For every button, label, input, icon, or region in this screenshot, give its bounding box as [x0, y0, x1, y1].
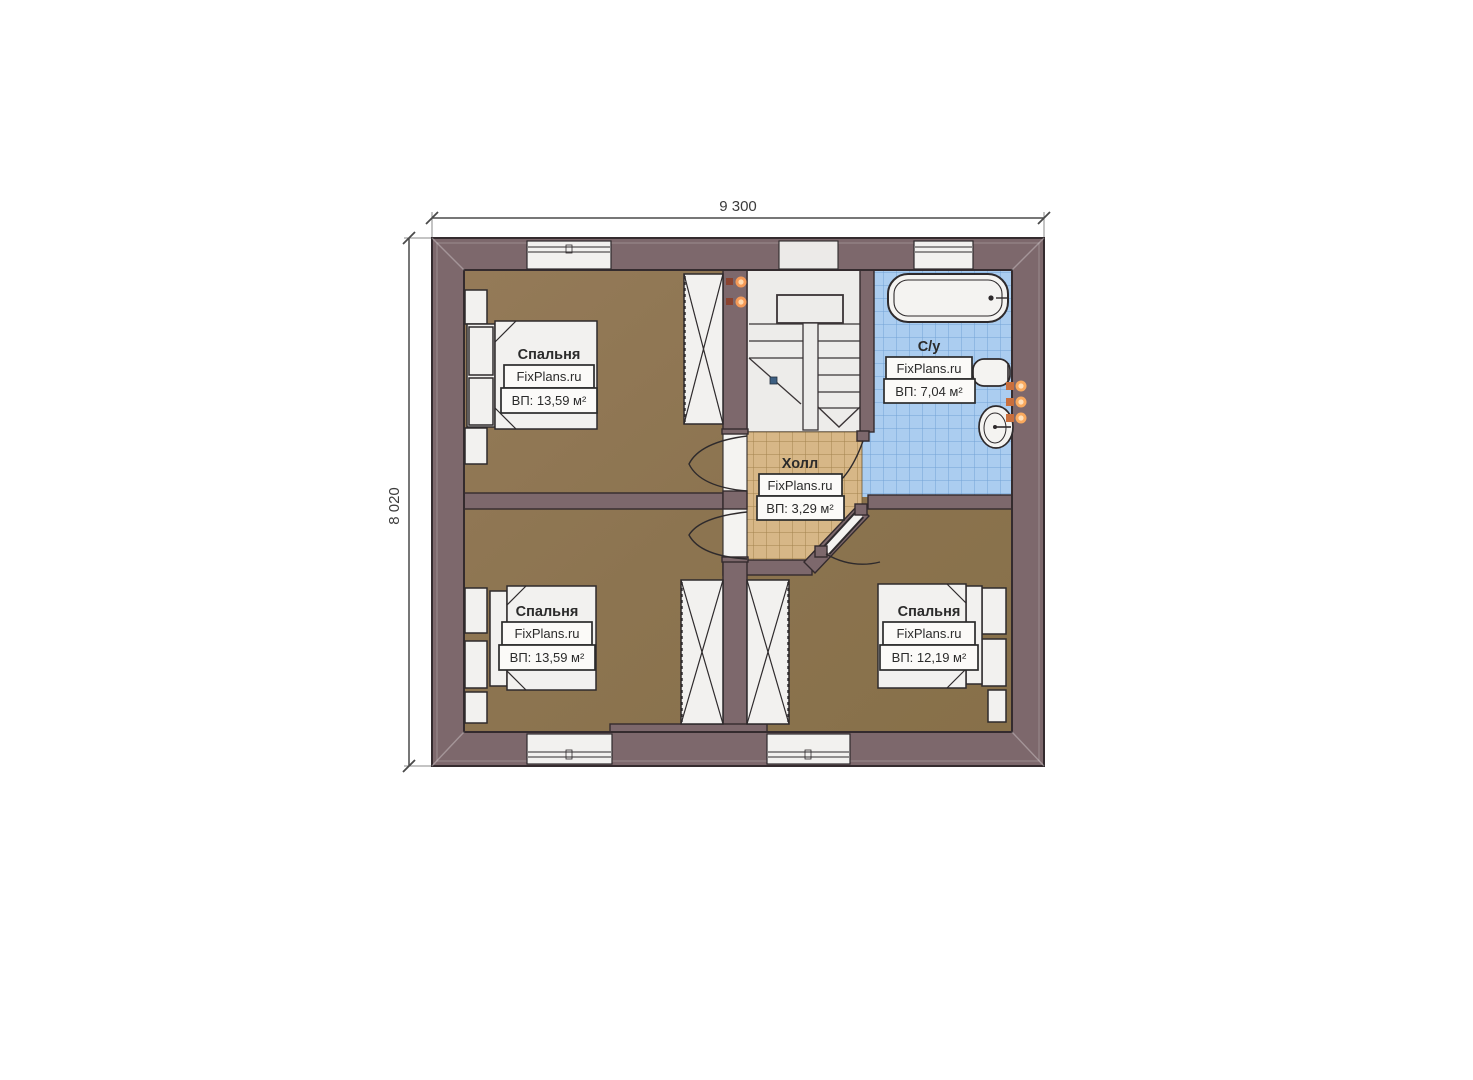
room-area: ВП: 3,29 м²	[766, 501, 834, 516]
window-icon	[527, 734, 612, 764]
window-icon	[779, 241, 838, 269]
window-icon	[914, 241, 973, 269]
wall-stairs-bathroom	[860, 270, 874, 432]
room-watermark: FixPlans.ru	[896, 361, 961, 376]
sink-icon	[979, 406, 1013, 448]
wardrobe-icon	[681, 580, 723, 724]
dimension-top-label: 9 300	[719, 198, 757, 215]
floor-plan-page: 9 300 8 020	[0, 0, 1473, 1080]
window-icon	[527, 241, 611, 269]
wall-bedrooms-divider	[464, 493, 723, 509]
wall-bedroom-stairs	[723, 270, 747, 432]
window-icon	[767, 734, 850, 764]
wardrobe-icon	[684, 274, 723, 424]
room-area: ВП: 12,19 м²	[892, 650, 967, 665]
bathtub-icon	[888, 274, 1008, 322]
room-name: Холл	[782, 456, 818, 472]
dimension-left: 8 020	[386, 232, 432, 772]
floor-plan-canvas: 9 300 8 020	[0, 0, 1473, 1080]
dimension-left-label: 8 020	[386, 487, 403, 525]
stairs-break-marker	[770, 377, 777, 384]
wall-bathroom-bedroom	[868, 495, 1012, 509]
room-watermark: FixPlans.ru	[767, 478, 832, 493]
room-watermark: FixPlans.ru	[514, 626, 579, 641]
room-name: С/у	[918, 339, 941, 355]
room-name: Спальня	[516, 604, 579, 620]
room-area: ВП: 13,59 м²	[510, 650, 585, 665]
room-area: ВП: 7,04 м²	[895, 384, 963, 399]
wardrobe-icon	[747, 580, 789, 724]
room-watermark: FixPlans.ru	[516, 369, 581, 384]
room-name: Спальня	[898, 604, 961, 620]
room-area: ВП: 13,59 м²	[512, 393, 587, 408]
dimension-top: 9 300	[426, 198, 1050, 238]
toilet-icon	[973, 359, 1010, 386]
wall-bedrooms-stub	[723, 560, 747, 728]
room-name: Спальня	[518, 347, 581, 363]
room-watermark: FixPlans.ru	[896, 626, 961, 641]
